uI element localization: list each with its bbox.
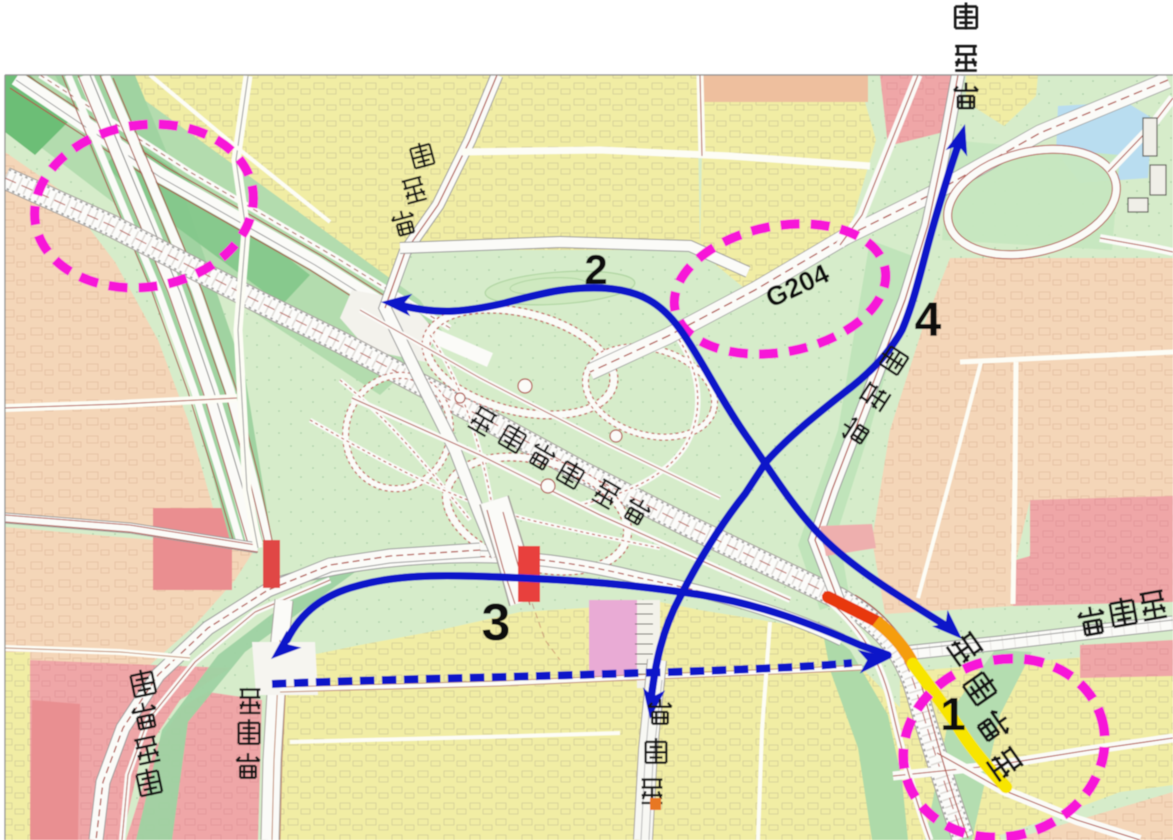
- svg-text:2: 2: [584, 246, 607, 293]
- svg-text:3: 3: [482, 594, 511, 652]
- svg-text:4: 4: [915, 294, 942, 347]
- svg-text:1: 1: [940, 688, 966, 740]
